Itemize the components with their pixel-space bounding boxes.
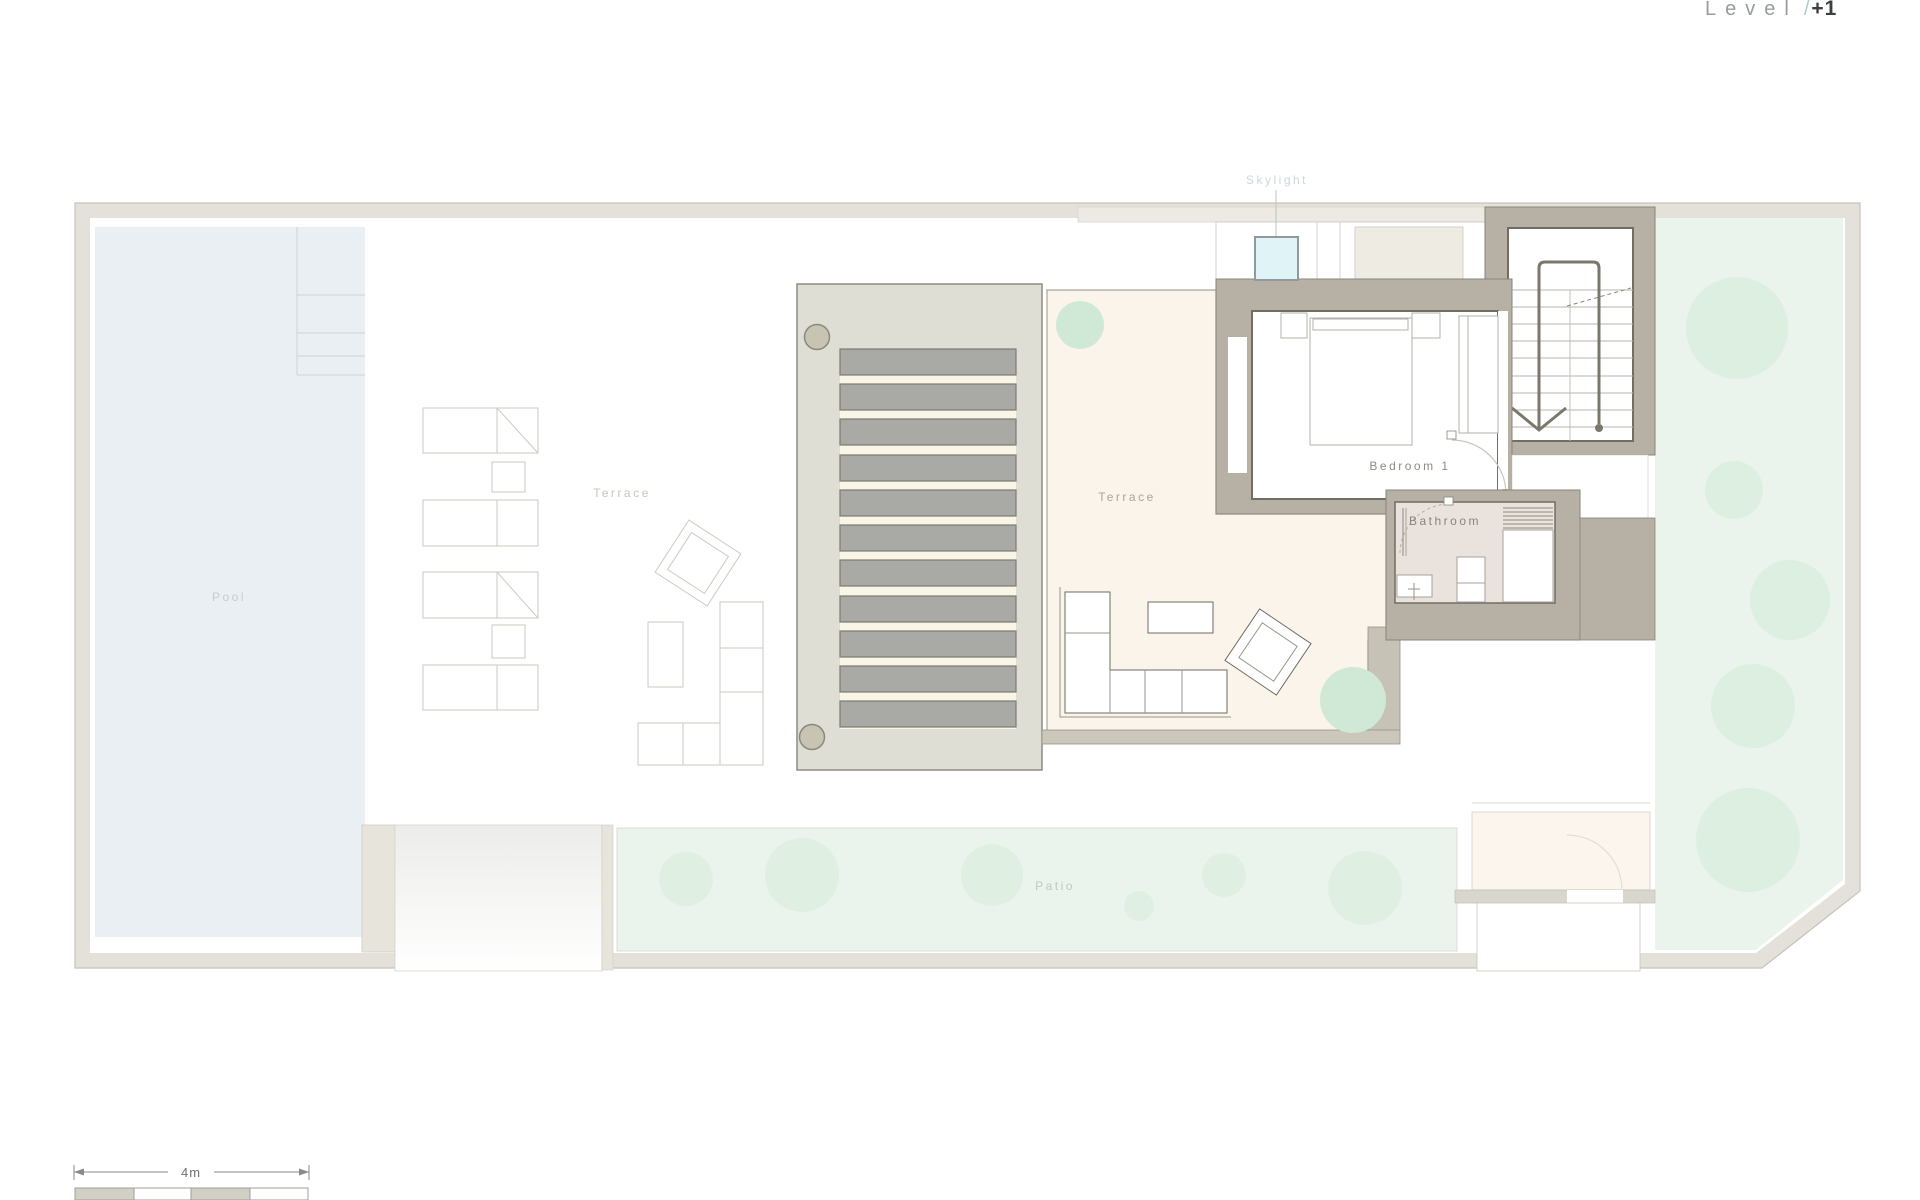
- sun-lounger: [423, 408, 538, 453]
- entry-door-opening: [1567, 890, 1623, 903]
- terrace-main-label: Terrace: [1098, 490, 1156, 504]
- skylight-window: [1255, 237, 1298, 280]
- coffee-table: [1148, 602, 1213, 633]
- dim-arrow-right: [299, 1169, 309, 1176]
- driveway-divider: [602, 825, 613, 970]
- title-level-number: +1: [1811, 0, 1837, 20]
- floor-plan-drawing: Pool Patio: [0, 0, 1920, 1200]
- nightstand: [1412, 313, 1440, 338]
- floor-plan-canvas: Pool Patio: [0, 0, 1920, 1200]
- scale-label: 4m: [181, 1165, 201, 1180]
- scale-bar: 4m: [74, 1165, 309, 1200]
- pool-label: Pool: [212, 590, 246, 604]
- entry-block: [1455, 803, 1655, 971]
- pergola-column: [805, 325, 830, 350]
- scale-bar-segments: [75, 1188, 308, 1200]
- pool-area: Pool: [95, 227, 365, 937]
- garden-area: [1655, 218, 1843, 950]
- side-table: [492, 462, 525, 492]
- door-jamb: [1444, 497, 1453, 505]
- roof-edge-band: [1078, 207, 1510, 222]
- driveway-ramp: [395, 825, 602, 971]
- toilet: [1457, 557, 1485, 602]
- bed: [1310, 318, 1412, 445]
- bedroom-suite: Bedroom 1: [1216, 279, 1512, 514]
- wardrobe: [1459, 316, 1498, 433]
- terrace-west-label: Terrace: [593, 486, 651, 500]
- bedroom-furniture: [1281, 313, 1498, 445]
- upper-room: [1355, 227, 1463, 279]
- wall-band-east: [1580, 518, 1655, 640]
- west-wall-recess: [1228, 337, 1247, 473]
- bedroom-label: Bedroom 1: [1369, 459, 1450, 473]
- door-jamb: [1447, 431, 1456, 439]
- planter: [1056, 301, 1104, 349]
- pergola: [797, 284, 1042, 770]
- page-title: Level/+1: [1705, 0, 1837, 20]
- patio-area: Patio: [617, 828, 1457, 951]
- entry-wall-band: [1455, 890, 1655, 903]
- skylight-label: Skylight: [1246, 173, 1308, 187]
- bed-headboard: [1313, 319, 1408, 330]
- side-table: [492, 625, 525, 658]
- stair-start-dot: [1595, 424, 1603, 432]
- sun-lounger: [423, 572, 538, 618]
- bathroom-label: Bathroom: [1409, 514, 1481, 528]
- planter: [1320, 667, 1386, 733]
- shower-tray: [1503, 530, 1553, 602]
- nightstand: [1281, 313, 1307, 338]
- entry-stoop: [1477, 903, 1640, 971]
- pergola-column: [800, 725, 825, 750]
- entry-room: [1472, 812, 1650, 890]
- side-strip: [362, 825, 395, 952]
- dim-arrow-left: [74, 1169, 84, 1176]
- pergola-slats: [840, 349, 1016, 727]
- patio-label: Patio: [1035, 879, 1075, 893]
- sun-lounger: [423, 665, 538, 710]
- title-separator: /: [1804, 0, 1810, 20]
- title-level-word: Level: [1705, 0, 1798, 20]
- east-wall-gap: [1498, 311, 1508, 499]
- sun-lounger: [423, 500, 538, 546]
- side-table: [648, 622, 683, 687]
